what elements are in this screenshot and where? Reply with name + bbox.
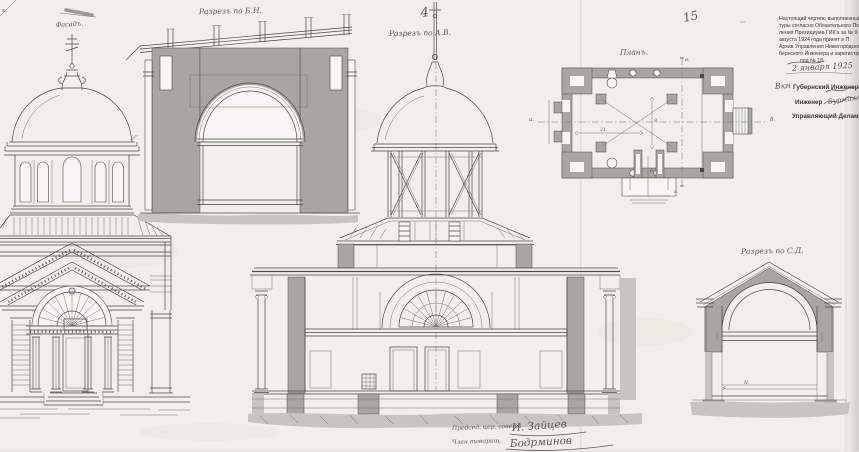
ab-basement — [252, 391, 620, 414]
cd-ground — [690, 400, 850, 418]
ab-right-wall-shadow — [620, 278, 636, 400]
cd-dimension-label: N. — [743, 380, 750, 386]
section-bn: Разрезъ по Б.Н. — [126, 6, 360, 225]
stamp-line-3: ления Президиума ГИК'а за № 9 — [779, 30, 858, 36]
stamp-line-1: Настоящий чертеж, выполненный — [779, 15, 859, 22]
signature-row2-name: Бодрминов — [509, 435, 573, 450]
bn-ground — [138, 214, 358, 225]
plan-corner-pavilions — [562, 68, 733, 178]
ab-spire — [427, 2, 444, 86]
pencil-mark-corner: х. — [2, 8, 7, 14]
facade-cross — [65, 34, 79, 68]
section-bn-title: Разрезъ по Б.Н. — [198, 6, 262, 16]
official-line-3: Управляющий Делами — [792, 112, 859, 120]
section-cd: Разрезъ по С.Д. N. — [690, 246, 850, 418]
facade-rusticated-walls — [10, 318, 135, 392]
stamp-date: 2 января 1925 — [791, 61, 853, 73]
official-line-1: Губернский Инженер — [793, 83, 859, 91]
stamp-line-2: туры согласно Обязательного По — [779, 23, 859, 29]
facade-dome — [4, 88, 140, 155]
plan-left-porch — [554, 102, 562, 113]
ab-attic — [338, 244, 532, 268]
section-cd-title: Разрезъ по С.Д. — [740, 246, 804, 256]
corner-pilaster — [149, 256, 173, 393]
section-ab-title: Разрезъ по А.В. — [388, 28, 451, 38]
ab-ground — [248, 413, 642, 428]
pencil-mark-15: 15 — [682, 8, 700, 25]
facade-drum — [10, 155, 134, 213]
pencil-mark-4: 4 — [419, 5, 430, 21]
facade-fan-lunette — [32, 286, 112, 326]
drawing-canvas: Фасадъ. — [0, 0, 859, 452]
plan-axis-bottom-label: г. — [674, 189, 679, 195]
cd-entablature — [722, 332, 817, 341]
scanned-architectural-drawing: Фасадъ. — [0, 0, 859, 452]
plan-axis-top-label: в. — [685, 57, 690, 63]
facade-steps-ground — [0, 393, 190, 418]
ab-skirt-roof — [336, 218, 534, 245]
plan-axis-left-label: а. — [529, 117, 534, 123]
plan: Планъ. — [529, 48, 775, 203]
stamp-line-6: бернского Инженера и зарегистри — [779, 51, 859, 57]
plan-dim-2: 9. — [654, 118, 659, 124]
facade-door — [63, 319, 88, 391]
stamp-line-5: Архив Управления Нижегородско — [779, 44, 859, 50]
plan-title: Планъ. — [619, 48, 648, 58]
ab-drum-bracing — [388, 151, 482, 217]
plan-dim-1: 21. — [599, 127, 608, 133]
official-prefix: Вкн — [774, 81, 792, 91]
ab-left-pier — [288, 277, 305, 393]
plan-crossing — [596, 94, 677, 152]
plan-apse-stair — [733, 108, 752, 134]
bn-left-wall — [152, 48, 200, 213]
ab-right-pier — [567, 277, 584, 393]
signature-row1-name: И. Зайцев — [510, 418, 567, 434]
facade-title: Фасадъ. — [56, 20, 84, 29]
ab-fan-window — [382, 274, 490, 328]
portico-columns — [30, 334, 114, 392]
plan-axis-right-label: б. — [770, 116, 775, 123]
cd-piers — [705, 306, 834, 400]
official-line-2: Инженер — [795, 99, 823, 106]
signature-row2-label: Член товарищ. — [452, 437, 502, 446]
ab-dome — [371, 86, 499, 151]
stamp-line-4: августа 1924 года принят в П — [779, 37, 849, 43]
plan-dim-3: 8. — [650, 168, 655, 174]
